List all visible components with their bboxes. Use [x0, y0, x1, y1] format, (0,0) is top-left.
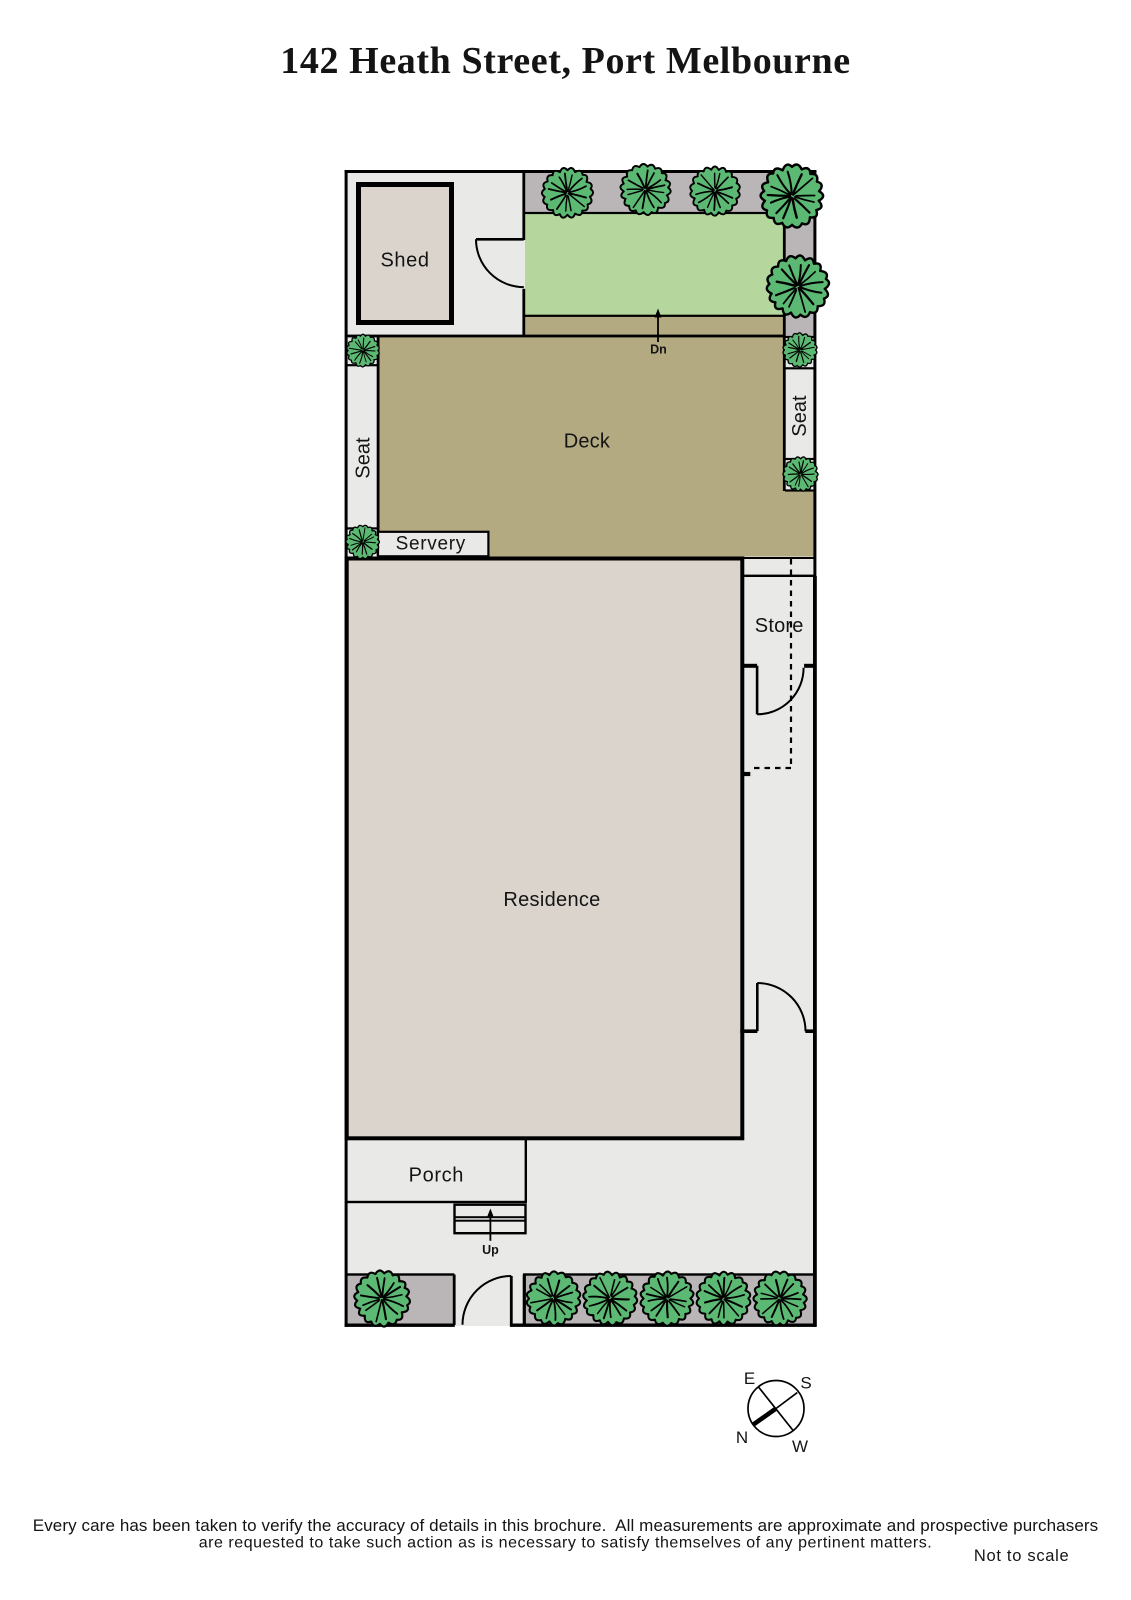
svg-text:N: N: [736, 1428, 748, 1447]
svg-text:Seat: Seat: [352, 437, 374, 479]
svg-text:are requested to take such act: are requested to take such action as is …: [199, 1534, 933, 1551]
svg-text:Servery: Servery: [396, 534, 466, 555]
svg-text:Up: Up: [482, 1243, 499, 1257]
svg-text:142 Heath Street, Port Melbour: 142 Heath Street, Port Melbourne: [280, 40, 850, 82]
svg-text:Porch: Porch: [409, 1165, 464, 1187]
svg-text:Not to scale: Not to scale: [974, 1547, 1070, 1565]
svg-text:Residence: Residence: [503, 889, 600, 911]
svg-text:Deck: Deck: [564, 430, 611, 452]
svg-text:S: S: [800, 1374, 811, 1393]
svg-text:E: E: [744, 1369, 755, 1388]
svg-text:Store: Store: [755, 615, 804, 637]
svg-text:Seat: Seat: [789, 395, 811, 437]
svg-text:W: W: [792, 1437, 808, 1456]
svg-text:Every care has been taken to v: Every care has been taken to verify the …: [33, 1516, 1099, 1535]
svg-text:Shed: Shed: [380, 250, 429, 272]
svg-text:Dn: Dn: [650, 343, 667, 357]
